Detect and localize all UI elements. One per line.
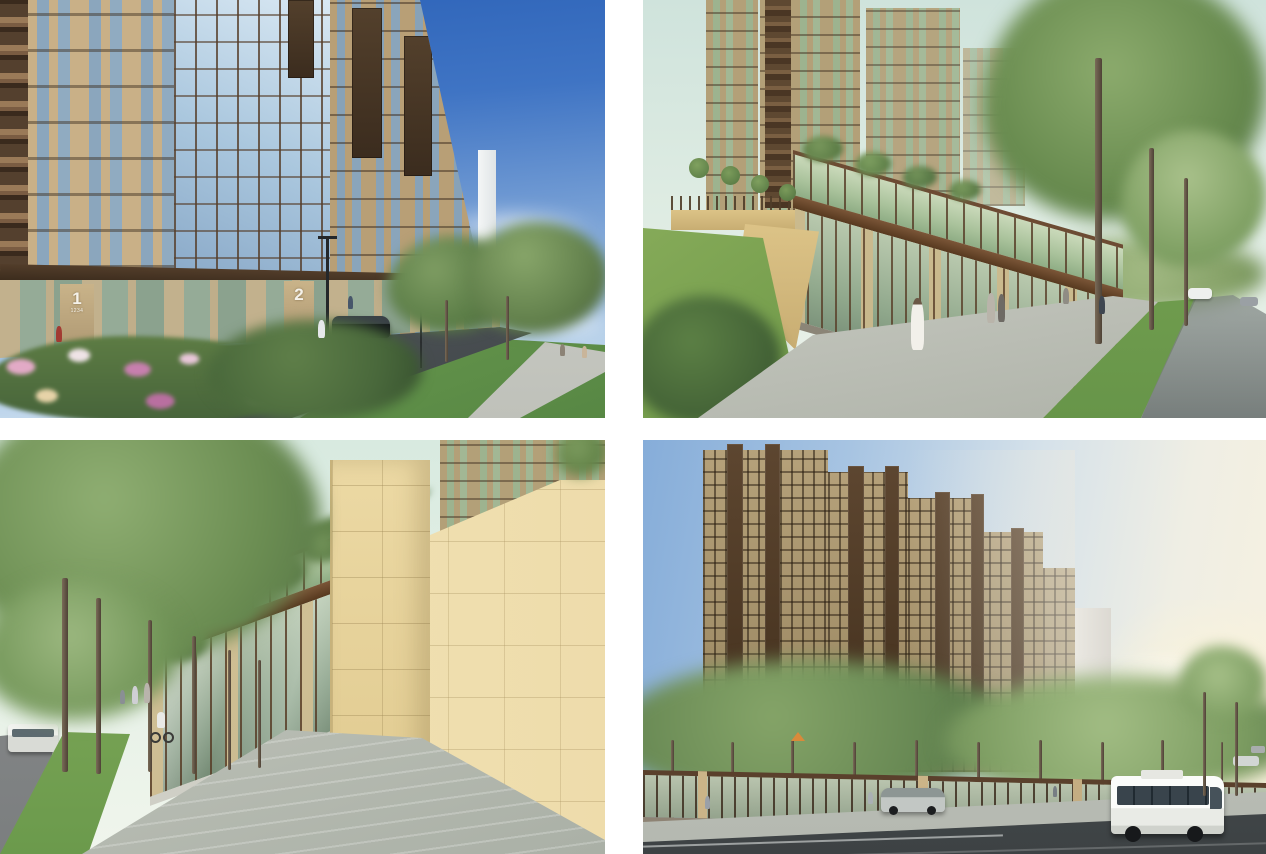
car-distant [1188, 288, 1212, 299]
person [56, 326, 62, 342]
person [998, 294, 1005, 322]
retaining-wall [671, 210, 795, 230]
bike-wheel [163, 732, 174, 743]
person [1053, 786, 1057, 797]
tree-trunk [1203, 692, 1206, 796]
car-distant [1251, 746, 1265, 753]
cyclist [148, 712, 174, 746]
tree-trunk [506, 296, 509, 360]
render-top-right [643, 0, 1266, 418]
street-lamp-arm [318, 236, 337, 239]
render-bottom-left [0, 440, 605, 854]
person [1099, 296, 1105, 314]
balcony-bay [352, 8, 382, 158]
bus-windows [12, 729, 54, 737]
bus-roof-box [1141, 770, 1183, 779]
render-top-left: 1 1234 2 [0, 0, 605, 418]
car-distant [1240, 297, 1258, 306]
tree-trunk [1184, 178, 1188, 326]
person [868, 792, 873, 804]
tree-trunk [445, 300, 448, 362]
lollipop-tree [779, 184, 796, 201]
bus-wheel [1187, 826, 1203, 842]
person [582, 346, 587, 358]
person [318, 320, 325, 338]
person [705, 796, 710, 809]
person [987, 293, 995, 323]
tree-trunk [1235, 702, 1238, 796]
lollipop-tree [689, 158, 709, 178]
person [560, 344, 565, 356]
person [120, 690, 125, 704]
playground-roof [791, 732, 805, 741]
entrance-number: 2 [284, 286, 314, 303]
entrance-1-sign: 1 1234 [60, 290, 94, 314]
bus-windshield [1210, 787, 1222, 809]
bus [8, 724, 58, 752]
entrance-number: 1 [60, 290, 94, 307]
person-white-robe [911, 298, 924, 350]
cyclist-body [157, 712, 165, 728]
car-silver [881, 788, 945, 812]
tree-trunk [62, 578, 68, 772]
person [132, 686, 138, 704]
person [1063, 288, 1069, 304]
car-wheel [889, 806, 898, 815]
bus-wheel [1125, 826, 1141, 842]
bus [1111, 770, 1229, 846]
lollipop-tree [721, 166, 740, 185]
person [348, 296, 353, 309]
tree-canopy [468, 222, 605, 334]
person [144, 683, 150, 703]
entrance-2-sign: 2 [284, 286, 314, 303]
bus-body [1111, 776, 1224, 834]
bus-windows [1117, 786, 1209, 805]
balcony-bay [404, 36, 432, 176]
lollipop-tree [751, 175, 769, 193]
tree-trunk [1149, 148, 1154, 330]
balcony-ladder [765, 0, 791, 208]
tree-trunk [228, 650, 231, 770]
balcony-bay [288, 0, 314, 78]
bike-wheel [150, 732, 161, 743]
render-sheet: { "document": { "type": "architectural-r… [0, 0, 1266, 854]
render-bottom-right [643, 440, 1266, 854]
entrance-subtext: 1234 [60, 309, 94, 314]
tree-trunk [258, 660, 261, 768]
tree-trunk [192, 636, 196, 774]
car-wheel [927, 806, 936, 815]
bush [208, 320, 422, 418]
tree-trunk [96, 598, 101, 774]
